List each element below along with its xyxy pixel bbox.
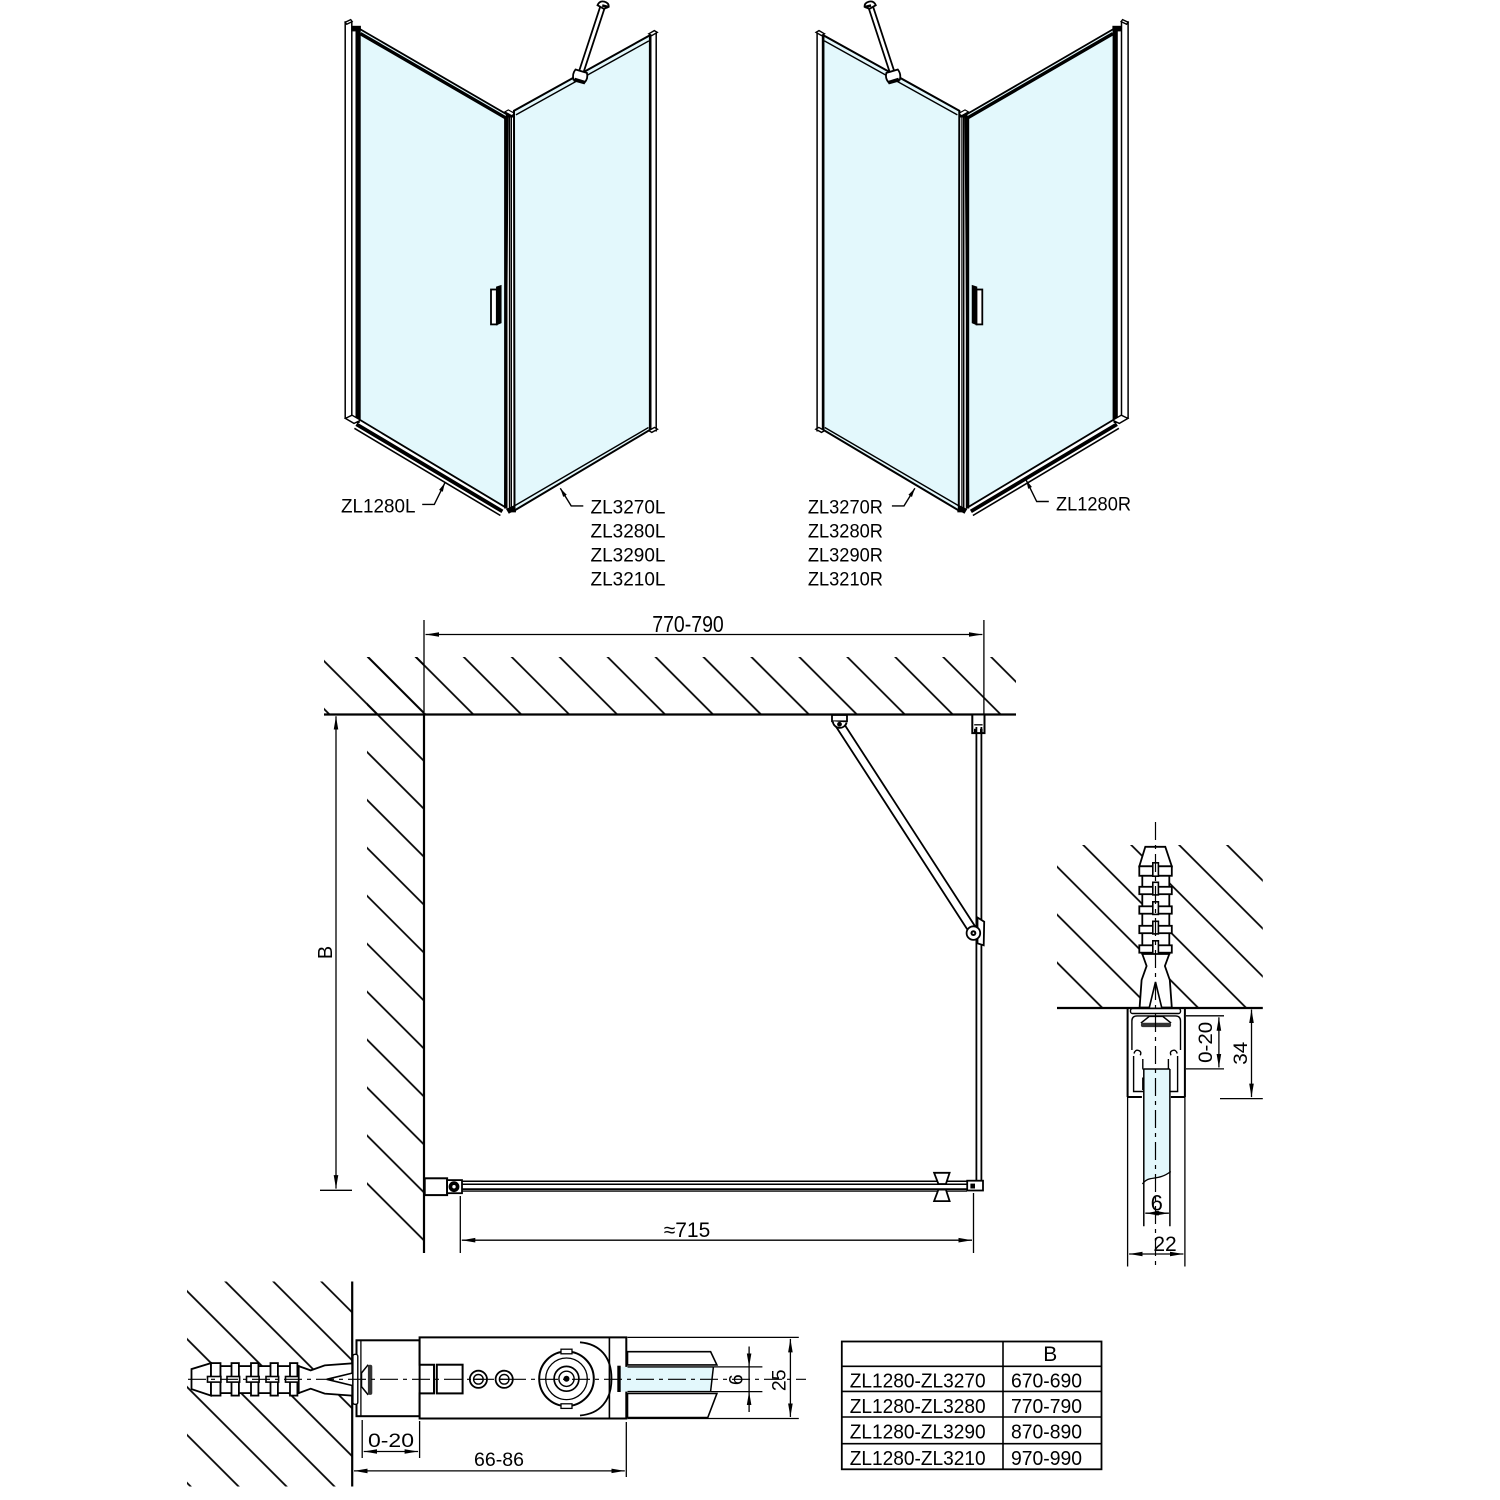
svg-text:ZL3290R: ZL3290R xyxy=(808,545,883,567)
svg-text:670-690: 670-690 xyxy=(1011,1369,1082,1392)
svg-text:0-20: 0-20 xyxy=(368,1430,414,1452)
svg-text:ZL1280-ZL3210: ZL1280-ZL3210 xyxy=(850,1447,986,1470)
svg-text:ZL3210R: ZL3210R xyxy=(808,569,883,591)
svg-text:ZL1280-ZL3270: ZL1280-ZL3270 xyxy=(850,1369,986,1392)
svg-text:770-790: 770-790 xyxy=(1011,1395,1082,1418)
svg-text:970-990: 970-990 xyxy=(1011,1447,1082,1470)
svg-text:ZL3290L: ZL3290L xyxy=(591,545,666,567)
svg-text:ZL1280-ZL3290: ZL1280-ZL3290 xyxy=(850,1421,986,1444)
svg-text:870-890: 870-890 xyxy=(1011,1421,1082,1444)
svg-text:34: 34 xyxy=(1230,1042,1252,1065)
svg-text:6: 6 xyxy=(726,1374,748,1385)
svg-text:0-20: 0-20 xyxy=(1195,1022,1217,1063)
svg-text:B: B xyxy=(315,946,337,959)
svg-text:ZL3280R: ZL3280R xyxy=(808,521,883,543)
svg-text:ZL3210L: ZL3210L xyxy=(591,569,666,591)
svg-text:ZL1280L: ZL1280L xyxy=(341,496,416,518)
svg-text:ZL1280-ZL3280: ZL1280-ZL3280 xyxy=(850,1395,986,1418)
svg-text:ZL3280L: ZL3280L xyxy=(591,521,666,543)
svg-text:25: 25 xyxy=(769,1369,791,1391)
svg-text:B: B xyxy=(1043,1343,1057,1366)
svg-text:ZL3270L: ZL3270L xyxy=(591,497,666,519)
svg-text:770-790: 770-790 xyxy=(652,611,724,637)
svg-text:22: 22 xyxy=(1153,1233,1176,1256)
svg-text:ZL1280R: ZL1280R xyxy=(1056,494,1131,516)
svg-text:66-86: 66-86 xyxy=(474,1449,524,1471)
svg-text:ZL3270R: ZL3270R xyxy=(808,497,883,519)
svg-text:6: 6 xyxy=(1151,1191,1163,1216)
svg-text:≈715: ≈715 xyxy=(664,1219,711,1242)
